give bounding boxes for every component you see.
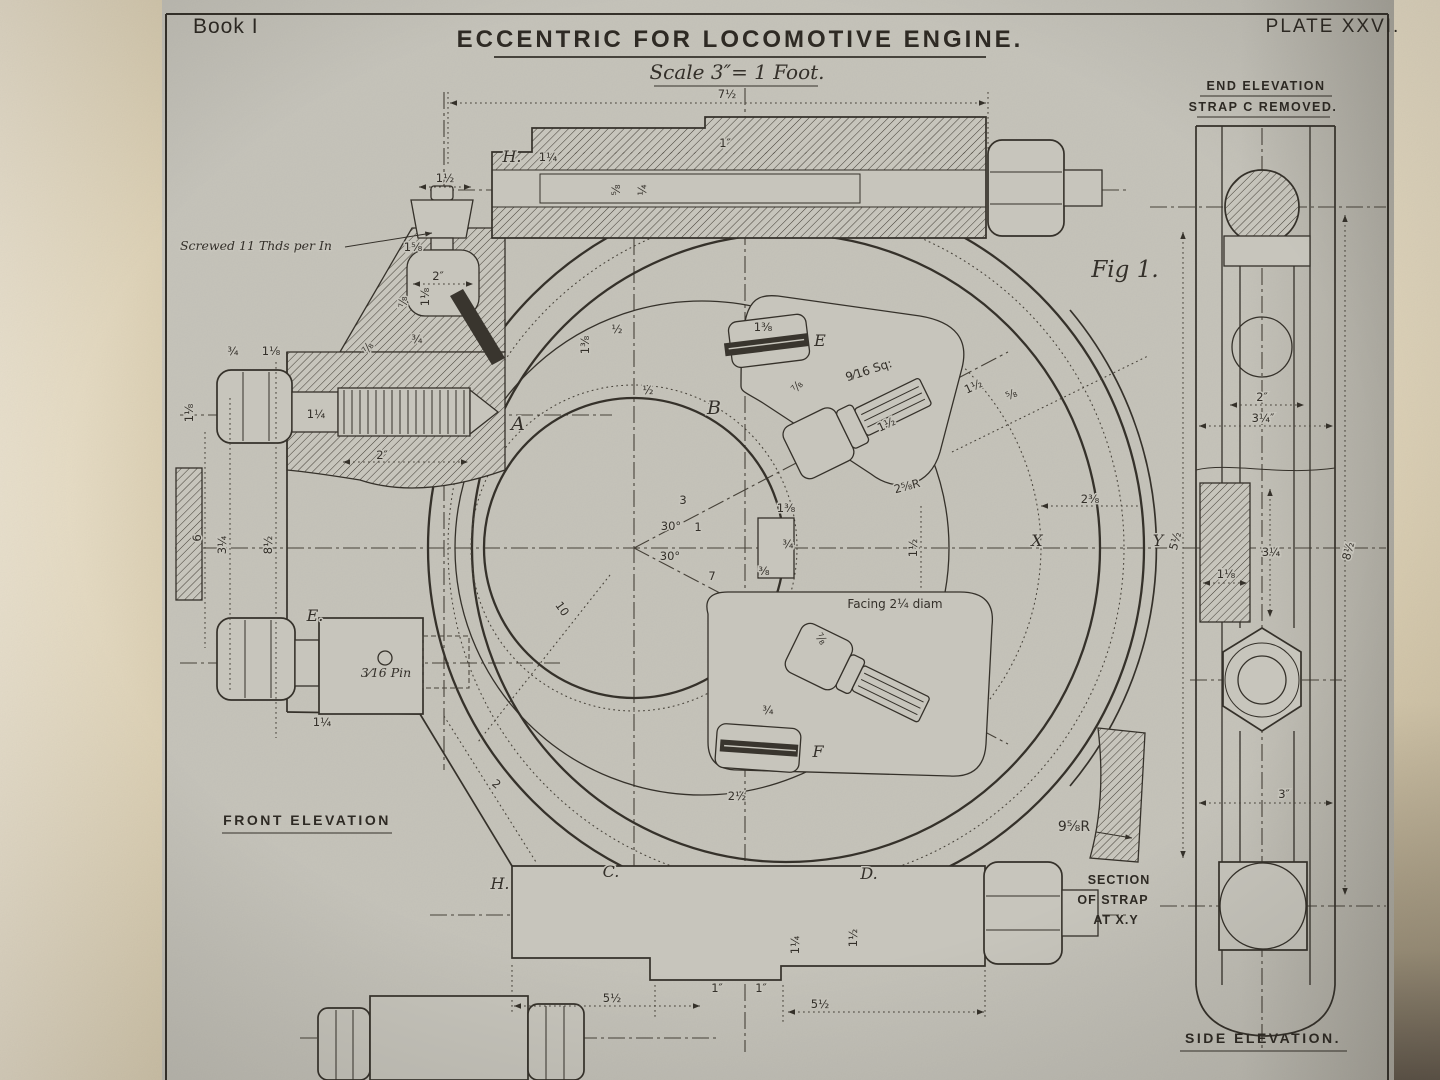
dimension-label: 1⅜ — [777, 501, 795, 515]
dimension-label: 2″ — [1256, 390, 1268, 404]
part-letter: X — [1029, 531, 1043, 550]
section-note-line1: SECTION — [1088, 873, 1151, 887]
edge-part-hatch — [176, 468, 202, 600]
dimension-label: 1⅝ — [404, 240, 422, 254]
dimension-label: 30° — [660, 549, 680, 563]
part-letter: B — [706, 397, 721, 419]
part-letter: E. — [306, 606, 324, 625]
dimension-label: 1⅛ — [182, 404, 196, 422]
dimension-label: ¾ — [762, 703, 773, 717]
scanned-plate-photo: Book I PLATE XXVI. ECCENTRIC FOR LOCOMOT… — [0, 0, 1440, 1080]
dimension-label: 2⅜ — [1081, 492, 1099, 506]
dimension-label: 7½ — [718, 87, 736, 101]
part-letter: H. — [501, 147, 521, 166]
dimension-label: ⅝ — [609, 184, 623, 195]
dimension-label: 1¼ — [539, 150, 557, 164]
end-elevation-subtitle: STRAP C REMOVED. — [1189, 100, 1338, 114]
dimension-label: 1¼ — [313, 715, 331, 729]
drawing-note: 9⅝R — [1058, 819, 1090, 835]
engineering-drawing: Book I PLATE XXVI. ECCENTRIC FOR LOCOMOT… — [0, 0, 1440, 1080]
dimension-label: 1⅜ — [578, 336, 592, 354]
part-letter: D. — [859, 864, 877, 883]
part-letter: H. — [489, 874, 509, 893]
dimension-label: 1⅛ — [418, 288, 432, 306]
dimension-label: 1 — [694, 520, 701, 534]
bottom-detail-bolt — [318, 996, 584, 1080]
drawing-note: Facing 2¼ diam — [847, 597, 942, 611]
dimension-label: 1″ — [711, 981, 723, 995]
end-elevation-title: END ELEVATION — [1206, 79, 1325, 93]
book-label: Book I — [193, 15, 259, 38]
section-note-line2: OF STRAP — [1077, 893, 1148, 907]
dimension-label: ¼ — [635, 184, 649, 195]
side-elevation-title: SIDE ELEVATION. — [1185, 1030, 1341, 1046]
dimension-label: 1¼ — [788, 936, 802, 954]
dimension-label: ¾ — [227, 344, 238, 358]
drawing-note: 3⁄16 Pin — [361, 665, 411, 680]
part-letter: F — [811, 742, 824, 761]
rod-head — [1224, 236, 1310, 266]
dimension-label: ¾ — [782, 537, 793, 551]
dimension-label: 2″ — [432, 269, 444, 283]
dimension-label: 2″ — [376, 448, 388, 462]
dimension-label: 8½ — [261, 536, 275, 554]
section-note-line3: AT X.Y — [1093, 913, 1138, 927]
dimension-label: 3 — [679, 493, 686, 507]
dimension-label: ⅜ — [758, 564, 769, 578]
dimension-label: 1½ — [436, 171, 454, 185]
top-strap-arm — [492, 117, 986, 238]
dimension-label: 7 — [708, 569, 715, 583]
scale-note: Scale 3″= 1 Foot. — [649, 60, 824, 84]
part-letter: A — [509, 413, 525, 435]
dimension-label: 1″ — [719, 136, 731, 150]
part-letter: E — [813, 331, 826, 350]
dimension-label: ½ — [611, 322, 622, 336]
dimension-label: 3¼″ — [1252, 411, 1275, 425]
gib-key-f — [715, 723, 802, 773]
dimension-label: 5½ — [811, 997, 829, 1011]
drawing-note: Screwed 11 Thds per In — [180, 238, 332, 253]
dimension-label: ¾ — [411, 332, 422, 346]
strap-section-side — [1200, 483, 1250, 622]
dimension-label: 1⅛ — [262, 344, 280, 358]
dimension-label: ½ — [642, 383, 653, 397]
dimension-label: 6 — [190, 534, 204, 541]
dimension-label: 2½ — [728, 789, 746, 803]
figure-label: Fig 1. — [1090, 257, 1158, 283]
dimension-label: 3¼ — [1262, 545, 1280, 559]
part-letter: C. — [603, 862, 620, 881]
dimension-label: 1½ — [906, 539, 920, 557]
page-title: ECCENTRIC FOR LOCOMOTIVE ENGINE. — [457, 26, 1024, 53]
part-letter: Y — [1153, 531, 1165, 550]
plate-label: PLATE XXVI. — [1266, 16, 1401, 37]
dimension-label: ⅞ — [396, 296, 410, 307]
dimension-label: 1″ — [755, 981, 767, 995]
front-elevation-title: FRONT ELEVATION — [223, 812, 391, 828]
dimension-label: 30° — [661, 519, 681, 533]
dimension-label: 3″ — [1278, 787, 1290, 801]
dimension-label: 1⅜ — [754, 320, 772, 334]
dimension-label: 1¼ — [307, 407, 325, 421]
dimension-label: 1⅛ — [1217, 567, 1235, 581]
dimension-label: 5½ — [603, 991, 621, 1005]
bolt-section-circle — [1225, 170, 1299, 244]
dimension-label: 3¼ — [215, 536, 229, 554]
dimension-label: 1½ — [846, 929, 860, 947]
